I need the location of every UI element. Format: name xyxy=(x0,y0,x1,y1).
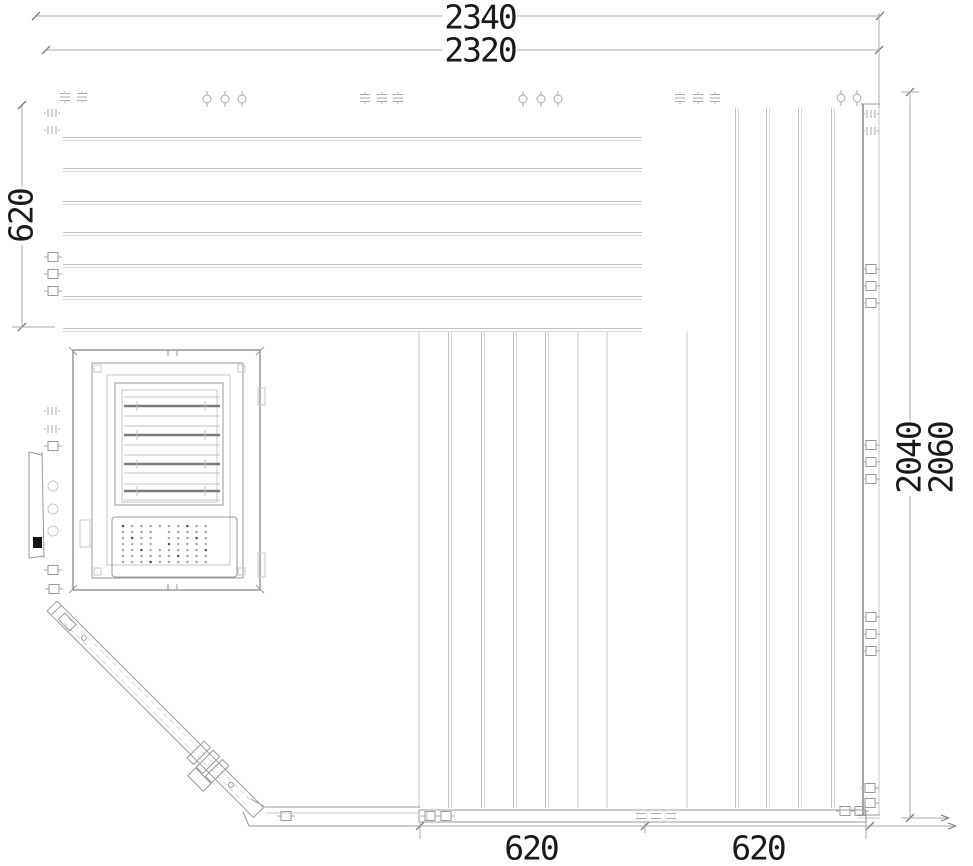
dim-label-bottom-left-panel: 620 xyxy=(502,832,560,865)
dim-label-inner-width: 2320 xyxy=(442,34,517,67)
dim-label-right-outer-height: 2060 xyxy=(925,420,958,495)
dim-label-left-depth: 620 xyxy=(5,187,38,245)
technical-drawing-page: 2340 2320 620 2040 2060 620 620 xyxy=(0,0,973,866)
drawing-svg xyxy=(0,0,973,866)
dim-label-overall-width: 2340 xyxy=(442,1,517,34)
dim-label-bottom-right-panel: 620 xyxy=(729,832,787,865)
